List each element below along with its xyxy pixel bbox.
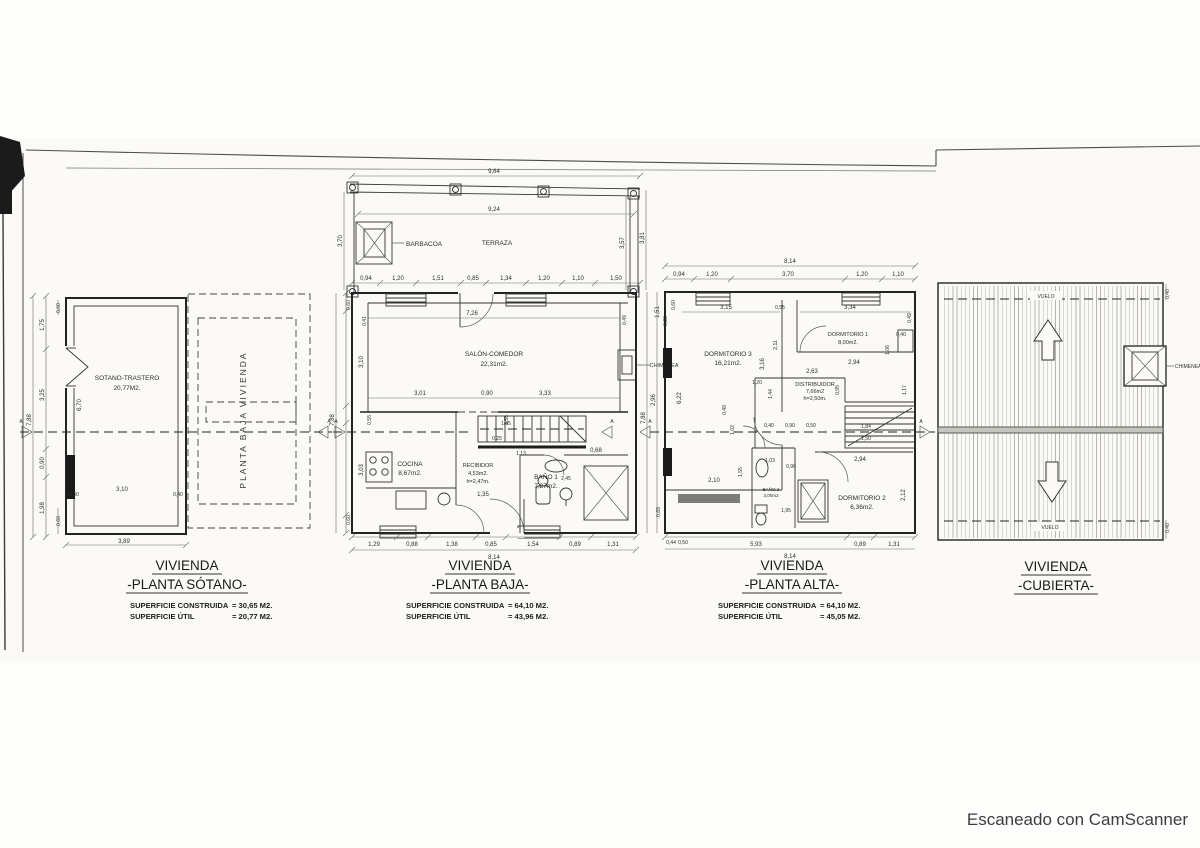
sup-value: = 30,65 M2. [232,601,272,610]
dim-label: 1,20 [706,272,718,278]
scan-edge-artifacts [0,136,1200,652]
dim-label: 0,60 [346,515,352,525]
dim-label: 2,94 [854,457,866,463]
alta-windows [663,293,880,476]
plan-title: VIVIENDA [760,558,823,573]
dim-label: 1,03 [765,458,775,464]
dim-label: 3,34 [844,305,856,311]
dim-label: 1,35 [477,492,489,498]
dim-label: 0,50 [806,423,816,429]
dim-label: 7,26 [466,311,478,317]
sup-label: SUPERFICIE CONSTRUIDA [406,601,505,610]
dim-label: 0,85 [467,276,479,282]
section-letter: A [610,419,614,425]
dim-label: 0,60 [346,300,352,310]
room-label: COCINA [397,461,423,468]
dim-label: 1,31 [607,542,619,548]
dim-label: 0,55 [775,305,785,311]
dim-label: 0,89 [656,507,662,517]
dim-label: 1,06 [885,345,891,355]
dim-label: 0,88 [406,542,418,548]
dim-label: 0,90 [786,464,796,470]
alta-walls [665,300,915,528]
dim-label: 2,11 [773,340,779,350]
plan-subtitle: -PLANTA BAJA- [431,577,528,592]
dim-label: 5,93 [750,542,762,548]
slope-arrow-down [1038,462,1066,502]
sup-label: SUPERFICIE ÚTIL [130,612,195,621]
dim-label: 1,50 [861,436,871,442]
dim-label: 1,84 [861,424,871,430]
dim-label: 3,33 [539,391,551,397]
dim-label: 2,45 [561,476,571,482]
room-label: BARBACOA [406,241,443,248]
sup-value: = 43,96 M2. [508,612,548,621]
dim-label: 0,60 [671,300,677,310]
room-label: SOTANO-TRASTERO [95,375,160,382]
dim-label: 1,13 [516,451,526,457]
dim-label: 3,89 [118,539,130,545]
dim-label: 3,01 [414,391,426,397]
room-label: DORMITORIO 2 [838,495,886,502]
dim-label: 0,95 [835,385,841,395]
section-letter: A [334,419,338,425]
dim-label: 0,60 [56,516,62,526]
dim-label: 0,55 [367,415,373,425]
dim-label: 1,20 [856,272,868,278]
dim-label: 1,51 [655,306,661,318]
dim-label: 3,70 [782,272,794,278]
dim-label: 1,38 [446,542,458,548]
room-label: RECIBIDOR [463,463,494,469]
plan-subtitle: -CUBIERTA- [1018,578,1094,593]
dim-label: 0,60 [56,303,62,313]
dim-label: 1,34 [500,276,512,282]
sup-value: = 20,77 M2. [232,612,272,621]
room-area: 20,77M2. [113,385,140,392]
dim-label: 0,40 [173,492,183,498]
section-marker [640,426,650,438]
plan-title: VIVIENDA [448,558,511,573]
plan-subtitle: -PLANTA ALTA- [745,577,840,592]
dim-label: 1,20 [538,276,550,282]
room-area: 6,36m2. [850,504,874,511]
sup-label: SUPERFICIE CONSTRUIDA [718,601,817,610]
room-label: DISTRIBUIDOR [795,382,834,388]
room-area: 16,21m2. [714,360,741,367]
room-area: 22,31m2. [480,361,507,368]
dim-label: 7,88 [641,412,647,424]
dim-label: 3,25 [40,389,46,401]
plan-title: VIVIENDA [1024,559,1087,574]
dim-label: 0,89 [854,542,866,548]
dim-label: 2,10 [708,478,720,484]
dim-label: 0,90 [785,423,795,429]
dim-label: 1,10 [572,276,584,282]
dim-label: 0,90 [481,391,493,397]
dim-label: 1,45 [501,421,511,427]
stairs-baja [478,416,586,447]
sup-value: = 45,05 M2. [820,612,860,621]
dim-label: 3,03 [359,464,365,476]
dim-label: 0,94 [360,276,372,282]
stairs-alta [845,406,915,448]
dim-label: 0,85 [485,542,497,548]
dim-label: 3,10 [359,356,365,368]
dim-label: 3,16 [760,358,766,370]
dim-label: 2,63 [806,369,818,375]
dim-label: 1,10 [892,272,904,278]
dim-label: 9,64 [488,169,500,175]
dim-label: 1,20 [752,380,762,386]
dim-label: 1,02 [730,425,736,435]
plan-cubierta: VUELO VUELO 0,40 0,40 CHIMENEA [938,283,1200,540]
roof-ridge [938,427,1163,433]
vuelo-label: VUELO [1042,525,1059,531]
room-label: CHIMENEA [1175,364,1200,370]
dim-label: 1,20 [392,276,404,282]
chimenea-symbol-roof [1124,346,1174,386]
dim-label: 0,89 [569,542,581,548]
dim-label: 0,40 [896,332,906,338]
room-area: h=2,47m. [466,479,490,485]
dim-label: 0,30 [663,316,669,326]
dim-label: 1,95 [781,508,791,514]
dim-label: 3,15 [720,305,732,311]
room-label: DORMITORIO 3 [704,351,752,358]
room-area: 7,66m2 [806,389,824,395]
sup-label: SUPERFICIE ÚTIL [406,612,471,621]
plan-title: VIVIENDA [155,558,218,573]
room-area: h=2,50m. [803,396,827,402]
barbacoa-symbol [356,222,392,264]
camscanner-watermark: Escaneado con CamScanner [967,810,1188,830]
bano1-fixtures [520,455,628,533]
room-area: 8,00m2. [838,340,858,346]
room-label: TERRAZA [482,240,513,247]
room-label: DORMITORIO 1 [828,332,868,338]
room-area: 8,67m2. [398,470,422,477]
alta-doors [743,326,848,482]
room-area: 3,00m2 [763,493,779,498]
section-letter: A [919,419,923,425]
sup-value: = 64,10 M2. [508,601,548,610]
dim-label: 1,98 [40,502,46,514]
planta-baja-overlay-outline [188,294,310,528]
dim-label: 0,40 [764,423,774,429]
dim-label: 0,49 [722,405,728,415]
dim-label: 2,12 [901,489,907,501]
room-area: 4,53m2. [468,471,488,477]
sup-label: SUPERFICIE ÚTIL [718,612,783,621]
plan-sotano: PLANTA BAJA VIVIENDA 7,88 1,75 3,25 0,90… [19,293,332,548]
overlay-label: PLANTA BAJA VIVIENDA [238,351,248,488]
dim-label: 0,94 [673,272,685,278]
slope-arrow-up [1034,320,1062,360]
dim-label: 6,22 [677,392,683,404]
dim-label: 1,55 [738,467,744,477]
dim-label: 0,49 [622,315,628,325]
plan-baja: CHIMENEA [330,169,679,561]
plan-alta: 8,14 0,94 1,20 3,70 1,20 1,10 1,51 0,60 … [641,259,935,560]
dim-label: 6,70 [77,399,83,411]
dim-label: 0,25 [492,436,502,442]
dim-label: 0,50 [678,540,688,546]
room-area: 7,27m2. [534,483,558,490]
dim-label: 7,88 [27,414,33,426]
dim-label: 0,30 [69,492,79,498]
dim-label: 1,31 [888,542,900,548]
scanned-floorplan-page: PLANTA BAJA VIVIENDA 7,88 1,75 3,25 0,90… [0,0,1200,848]
dim-label: 1,54 [527,542,539,548]
dim-label: 0,90 [40,457,46,469]
dim-label: 1,44 [768,389,774,399]
room-label: BAÑO 2 [763,486,780,492]
balcony-strip [678,494,740,503]
dim-label: 9,24 [488,207,500,213]
dim-label: 0,41 [362,316,368,326]
room-label: BAÑO 1 [534,472,558,481]
section-marker [602,426,612,438]
dim-label: 1,29 [368,542,380,548]
dim-label: 0,49 [907,313,913,323]
dim-label: 3,57 [620,237,626,249]
plan-subtitle: -PLANTA SÓTANO- [127,577,247,592]
dim-label: 3,81 [640,232,646,244]
chimenea-symbol [618,350,650,380]
sup-value: = 64,10 M2. [820,601,860,610]
sotano-dim-lines [30,293,189,548]
section-letter: A [648,419,652,425]
floorplan-drawing: PLANTA BAJA VIVIENDA 7,88 1,75 3,25 0,90… [0,0,1200,848]
room-label: SALÓN-COMEDOR [465,349,523,358]
dim-label: 1,75 [40,319,46,331]
dim-label: 1,51 [432,276,444,282]
dim-label: 1,17 [902,385,908,395]
dim-label: 0,68 [590,448,602,454]
sup-label: SUPERFICIE CONSTRUIDA [130,601,229,610]
plan-titles: VIVIENDA -PLANTA SÓTANO- SUPERFICIE CONS… [126,558,1098,621]
dim-label: 8,14 [784,259,796,265]
dim-label: 1,50 [610,276,622,282]
dim-label: 0,44 [666,540,676,546]
dim-label: 3,10 [116,487,128,493]
dim-label: 2,94 [848,360,860,366]
dim-label: 2,96 [651,394,657,406]
dim-label: 3,70 [338,235,344,247]
vuelo-label: VUELO [1038,294,1055,300]
